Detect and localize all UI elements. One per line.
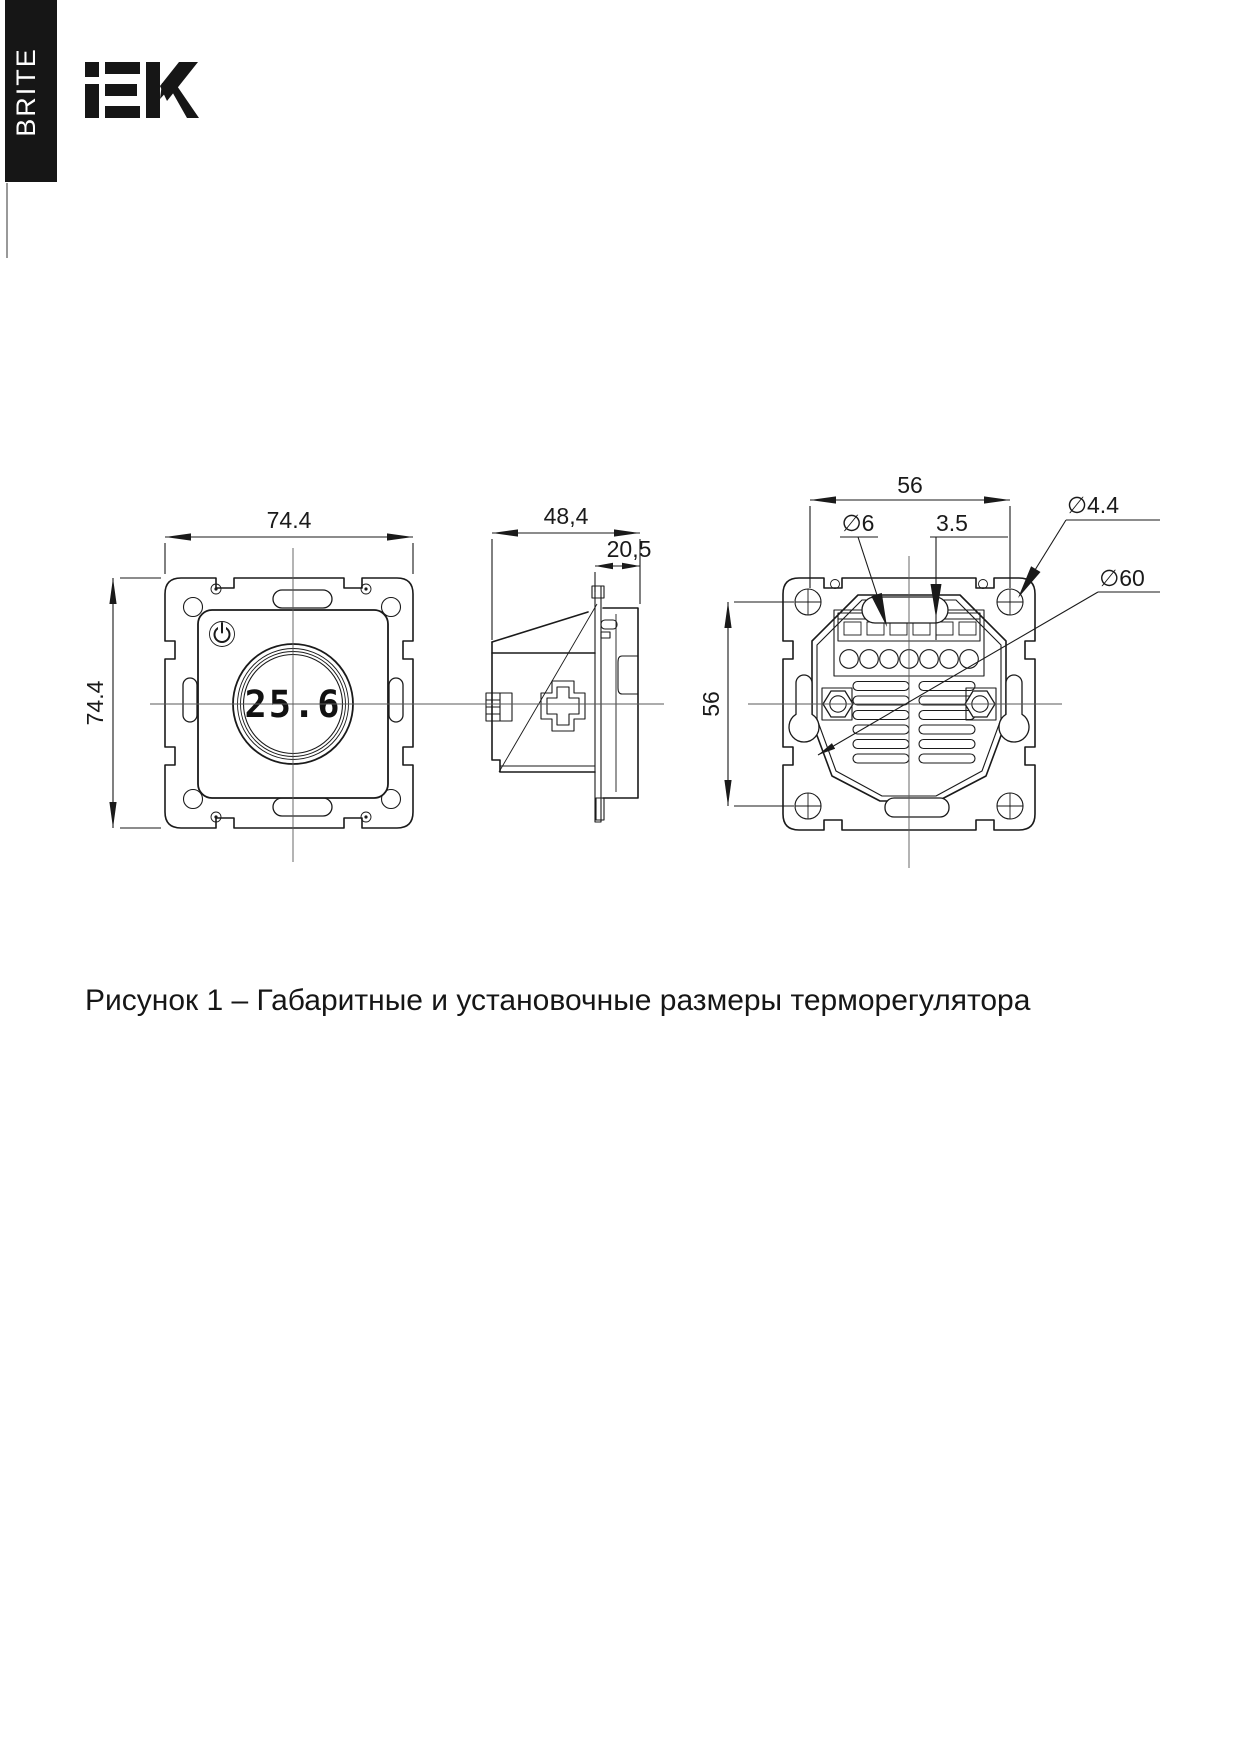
back-keyhole-left xyxy=(789,675,819,742)
dim-back-width: 56 xyxy=(897,472,923,498)
dim-front-height: 74.4 xyxy=(82,680,108,725)
front-corner-hole xyxy=(184,598,203,617)
back-view-drawing: 56 56 ∅6 3.5 ∅4.4 xyxy=(698,472,1160,868)
dimension-drawing-canvas: BRITE xyxy=(0,0,1245,1753)
front-view-drawing: 25.6 74.4 74.4 xyxy=(82,507,430,862)
ventilation-slots xyxy=(853,682,975,764)
label-keyhole-dia: ∅6 xyxy=(842,510,875,536)
figure-caption: Рисунок 1 – Габаритные и установочные ра… xyxy=(85,984,1031,1017)
side-protrusion-dimension: 20,5 xyxy=(595,536,651,592)
side-view-drawing: 48,4 20,5 xyxy=(428,503,664,822)
back-width-dimension: 56 xyxy=(810,472,1010,588)
back-frame-hole xyxy=(979,580,988,589)
back-frame-hole xyxy=(831,580,840,589)
front-frame-tab-right xyxy=(389,678,403,722)
dim-front-width: 74.4 xyxy=(267,507,312,533)
dim-back-height: 56 xyxy=(698,691,724,717)
label-mechanism-dia: ∅60 xyxy=(1099,565,1145,591)
iek-logo xyxy=(85,62,199,118)
back-keyhole-right xyxy=(999,675,1029,742)
front-frame-tab-top xyxy=(273,590,332,608)
back-keyhole-bottom xyxy=(885,798,949,817)
side-claw-arm xyxy=(499,604,597,772)
side-claw-screw xyxy=(601,620,617,629)
dim-side-depth: 48,4 xyxy=(544,503,589,529)
brite-series-label: BRITE xyxy=(11,47,41,137)
dim-side-protrusion: 20,5 xyxy=(607,536,652,562)
header: BRITE xyxy=(5,0,199,258)
leader-mechanism-dia: ∅60 xyxy=(818,565,1160,755)
side-faceplate xyxy=(603,608,638,798)
front-frame-tab-bottom xyxy=(273,798,332,816)
front-height-dimension: 74.4 xyxy=(82,578,161,828)
front-width-dimension: 74.4 xyxy=(165,507,413,574)
label-screw-hole-dia: ∅4.4 xyxy=(1067,492,1119,518)
manual-page: BRITE xyxy=(0,0,1245,1753)
label-terminal-slot: 3.5 xyxy=(936,510,968,536)
front-frame-tab-left xyxy=(183,678,197,722)
